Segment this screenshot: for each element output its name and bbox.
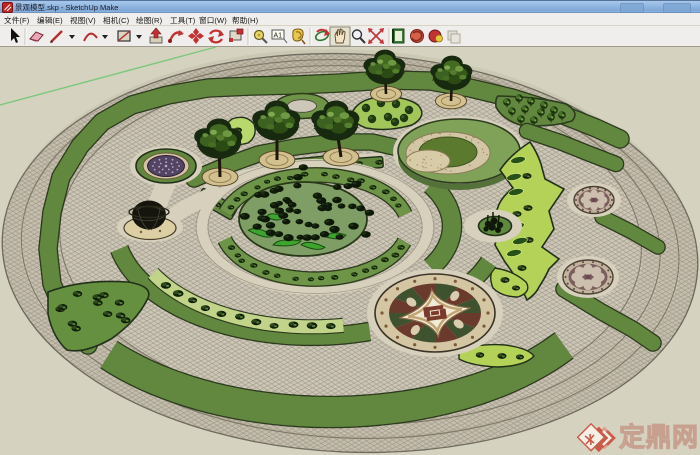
svg-text:定鼎网: 定鼎网 bbox=[619, 422, 699, 452]
